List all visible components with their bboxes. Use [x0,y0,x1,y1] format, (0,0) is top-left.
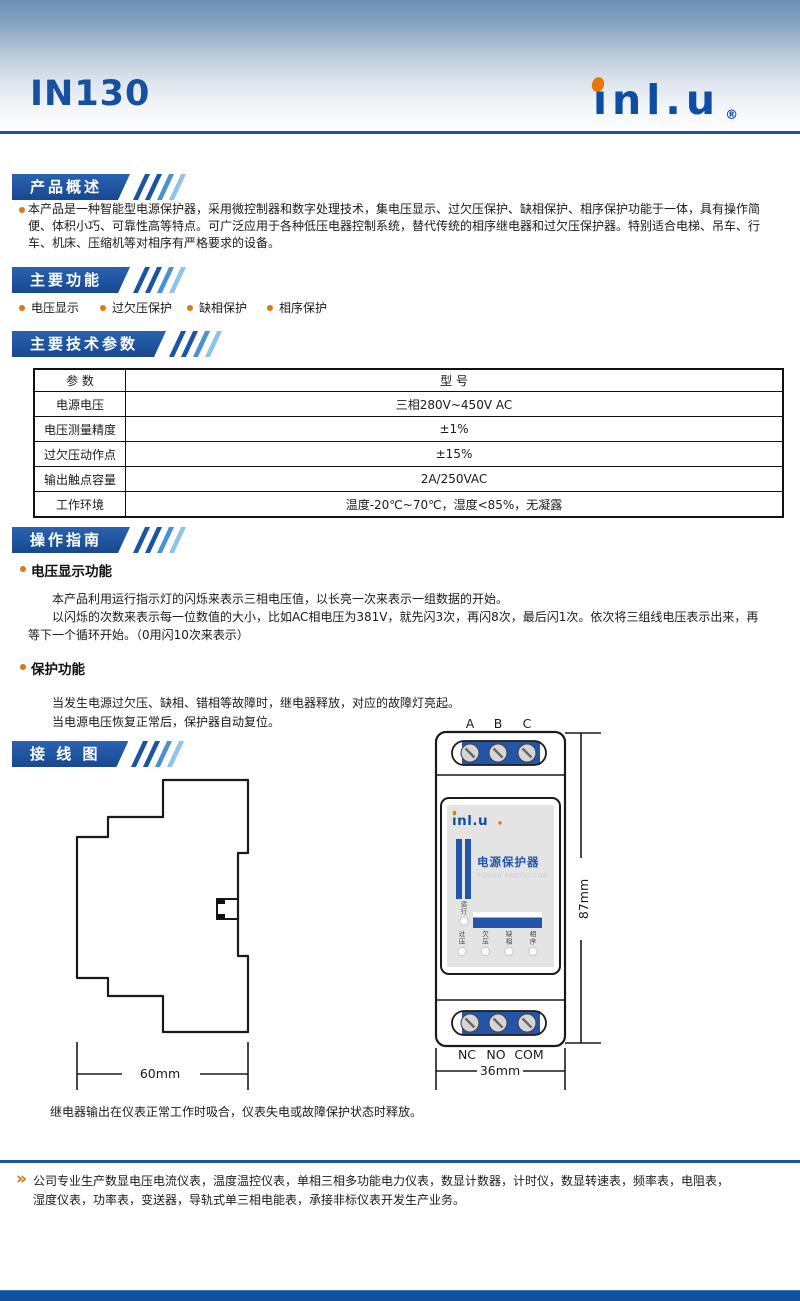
section-tab: 操作指南 [12,527,130,553]
run-led-icon [460,917,468,925]
bullet-icon [20,664,26,670]
sticker-logo-orange-dot-icon [453,811,457,816]
bullet-icon [19,207,25,213]
section-header-operation: 操作指南 [12,527,187,553]
svg-text:缺相: 缺相 [506,929,513,946]
terminal-label-a: A [466,716,475,731]
feature-item: 电压显示 [19,299,79,316]
spec-value: 温度-20℃~70℃，湿度<85%，无凝露 [126,492,784,518]
brand-logo-text: ınl.u [593,76,720,124]
bullet-icon [100,305,106,311]
diagonal-stripes-icon [175,331,223,357]
svg-text:相序: 相序 [530,929,537,946]
sticker-registered-icon [498,821,501,824]
din-clip-notch-corner [217,914,225,919]
company-description: 公司专业生产数显电压电流仪表，温度温控仪表，单相三相多功能电力仪表，数显计数器，… [33,1172,733,1209]
terminal-label-b: B [494,716,503,731]
spec-value: 三相280V~450V AC [126,392,784,417]
voltage-display-heading: 电压显示功能 [31,560,112,580]
diagonal-stripes-icon [139,174,187,200]
table-row: 过欠压动作点 ±15% [34,442,783,467]
spec-name: 工作环境 [34,492,126,518]
paragraph: 当发生电源过欠压、缺相、错相等故障时，继电器释放，对应的故障灯亮起。 [28,694,764,713]
section-header-overview: 产品概述 [12,174,187,200]
paragraph: 以闪烁的次数来表示每一位数值的大小，比如AC相电压为381V，就先闪3次，再闪8… [28,608,764,644]
wiring-note: 继电器输出在仪表正常工作时吸合，仪表失电或故障保护状态时释放。 [50,1104,750,1121]
feature-label: 过欠压保护 [112,301,172,315]
height-dimension-label: 87mm [576,879,591,919]
sticker-blue-bar [456,839,462,899]
footer-divider-rule [0,1160,800,1163]
feature-item: 相序保护 [267,299,327,316]
spec-table: 参 数 型 号 电源电压 三相280V~450V AC 电压测量精度 ±1% 过… [33,368,784,518]
spec-value: ±1% [126,417,784,442]
terminal-label-nc: NC [458,1047,476,1062]
protection-heading: 保护功能 [31,658,85,678]
spec-name: 电压测量精度 [34,417,126,442]
datasheet-page: IN130 ınl.u ® 产品概述 本产品是一种智能型电源保护器，采用微控制器… [0,0,800,1301]
bullet-icon [187,305,193,311]
terminal-label-no: NO [486,1047,505,1062]
terminal-label-com: COM [514,1047,543,1062]
header-divider-rule [0,131,800,134]
sticker-product-name-en: POWER PROTECTOR [477,874,548,880]
spec-name: 电源电压 [34,392,126,417]
spec-value: 2A/250VAC [126,467,784,492]
double-chevron-icon: » [16,1169,27,1189]
overview-paragraph: 本产品是一种智能型电源保护器，采用微控制器和数字处理技术，集电压显示、过欠压保护… [28,201,766,252]
col-header-model: 型 号 [126,369,784,392]
sticker-blue-strip [473,918,542,929]
col-header-parameter: 参 数 [34,369,126,392]
table-header-row: 参 数 型 号 [34,369,783,392]
bottom-blue-band [0,1290,800,1301]
wiring-diagram: 60mm A B C ınl.u 电源保护器 POWER PROTECTOR [60,712,620,1107]
depth-dimension-label: 60mm [140,1066,180,1081]
feature-label: 电压显示 [31,301,79,315]
section-header-features: 主要功能 [12,267,187,293]
voltage-display-paragraphs: 本产品利用运行指示灯的闪烁来表示三相电压值，以长亮一次来表示一组数据的开始。 以… [28,590,764,644]
sticker-brand-logo-text: ınl.u [452,813,488,829]
product-model-title: IN130 [30,74,150,114]
diagonal-stripes-icon [139,267,187,293]
feature-label: 相序保护 [279,301,327,315]
width-dimension-label: 36mm [480,1063,520,1078]
section-tab: 产品概述 [12,174,130,200]
sticker-white-strip [473,912,542,918]
din-clip-notch-corner [217,899,225,904]
sticker-product-name: 电源保护器 [477,855,540,869]
table-row: 输出触点容量 2A/250VAC [34,467,783,492]
device-side-profile-outline [77,780,248,1032]
section-tab: 主要功能 [12,267,130,293]
bullet-icon [20,566,26,572]
feature-item: 缺相保护 [187,299,247,316]
svg-text:欠压: 欠压 [482,929,489,946]
table-row: 电源电压 三相280V~450V AC [34,392,783,417]
svg-text:过压: 过压 [459,929,466,946]
spec-value: ±15% [126,442,784,467]
section-tab: 主要技术参数 [12,331,166,357]
paragraph: 本产品利用运行指示灯的闪烁来表示三相电压值，以长亮一次来表示一组数据的开始。 [28,590,764,608]
spec-name: 过欠压动作点 [34,442,126,467]
run-led-label: 运行 [461,900,468,916]
sticker-blue-bar [465,839,471,899]
diagonal-stripes-icon [139,527,187,553]
feature-item: 过欠压保护 [100,299,172,316]
top-terminal-screws [461,744,536,762]
section-header-specs: 主要技术参数 [12,331,223,357]
table-row: 工作环境 温度-20℃~70℃，湿度<85%，无凝露 [34,492,783,518]
bullet-icon [267,305,273,311]
feature-label: 缺相保护 [199,301,247,315]
table-row: 电压测量精度 ±1% [34,417,783,442]
spec-name: 输出触点容量 [34,467,126,492]
registered-trademark-icon: ® [725,108,738,123]
bullet-icon [19,305,25,311]
terminal-label-c: C [523,716,532,731]
brand-logo: ınl.u ® [593,80,720,121]
bottom-terminal-screws [461,1014,536,1032]
